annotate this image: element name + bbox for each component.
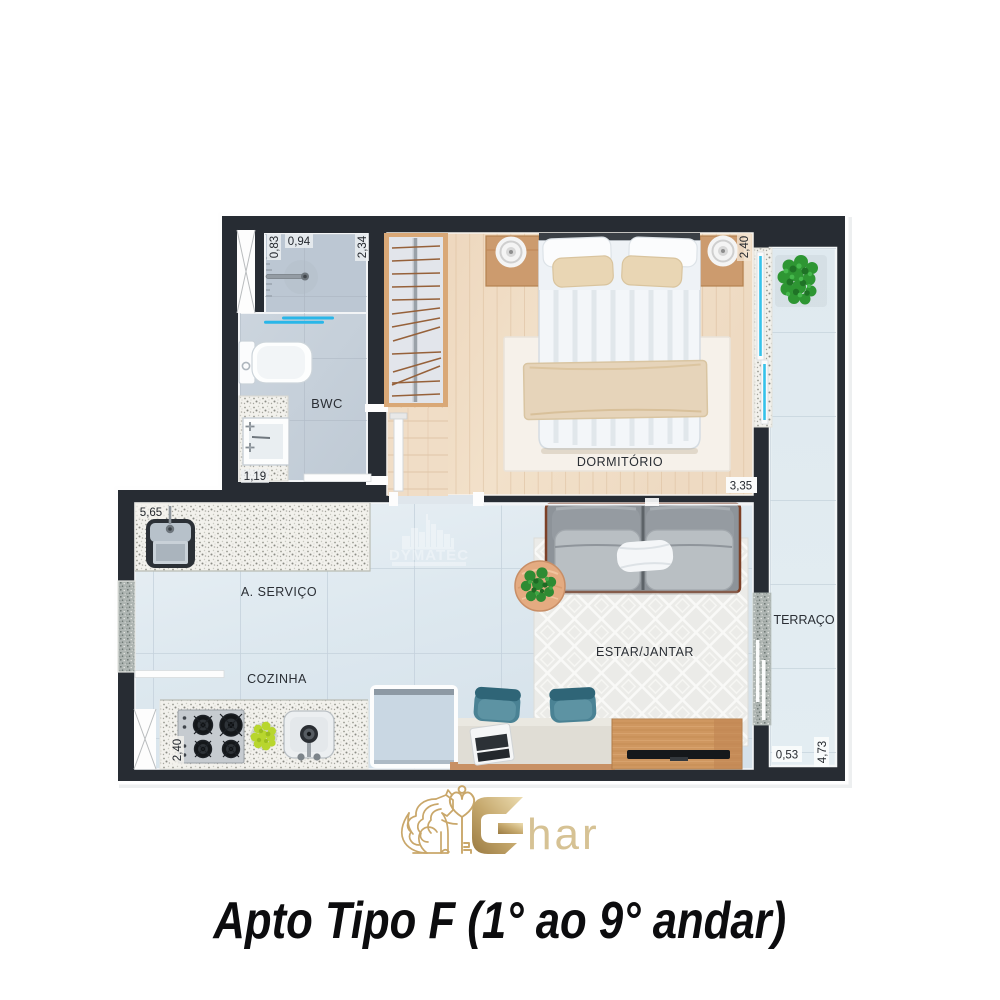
svg-text:har: har xyxy=(527,810,600,859)
svg-text:2,34: 2,34 xyxy=(357,235,369,258)
svg-text:DORMITÓRIO: DORMITÓRIO xyxy=(577,454,663,469)
svg-text:A. SERVIÇO: A. SERVIÇO xyxy=(241,585,317,599)
svg-text:0,53: 0,53 xyxy=(776,750,798,762)
svg-text:2,40: 2,40 xyxy=(172,739,184,761)
svg-text:ESTAR/JANTAR: ESTAR/JANTAR xyxy=(596,645,694,659)
svg-text:DYMATEC: DYMATEC xyxy=(389,547,469,564)
svg-text:5,65: 5,65 xyxy=(140,507,162,519)
svg-text:COZINHA: COZINHA xyxy=(247,672,307,686)
svg-text:TERRAÇO: TERRAÇO xyxy=(773,613,834,627)
svg-text:4,73: 4,73 xyxy=(817,741,829,763)
svg-text:2,40: 2,40 xyxy=(739,236,751,258)
svg-text:0,83: 0,83 xyxy=(269,236,281,258)
svg-text:Apto Tipo F (1° ao 9° andar): Apto Tipo F (1° ao 9° andar) xyxy=(212,893,786,950)
svg-text:3,35: 3,35 xyxy=(730,481,752,493)
svg-text:1,19: 1,19 xyxy=(244,471,266,483)
svg-text:0,94: 0,94 xyxy=(288,236,311,248)
svg-text:BWC: BWC xyxy=(311,396,343,411)
